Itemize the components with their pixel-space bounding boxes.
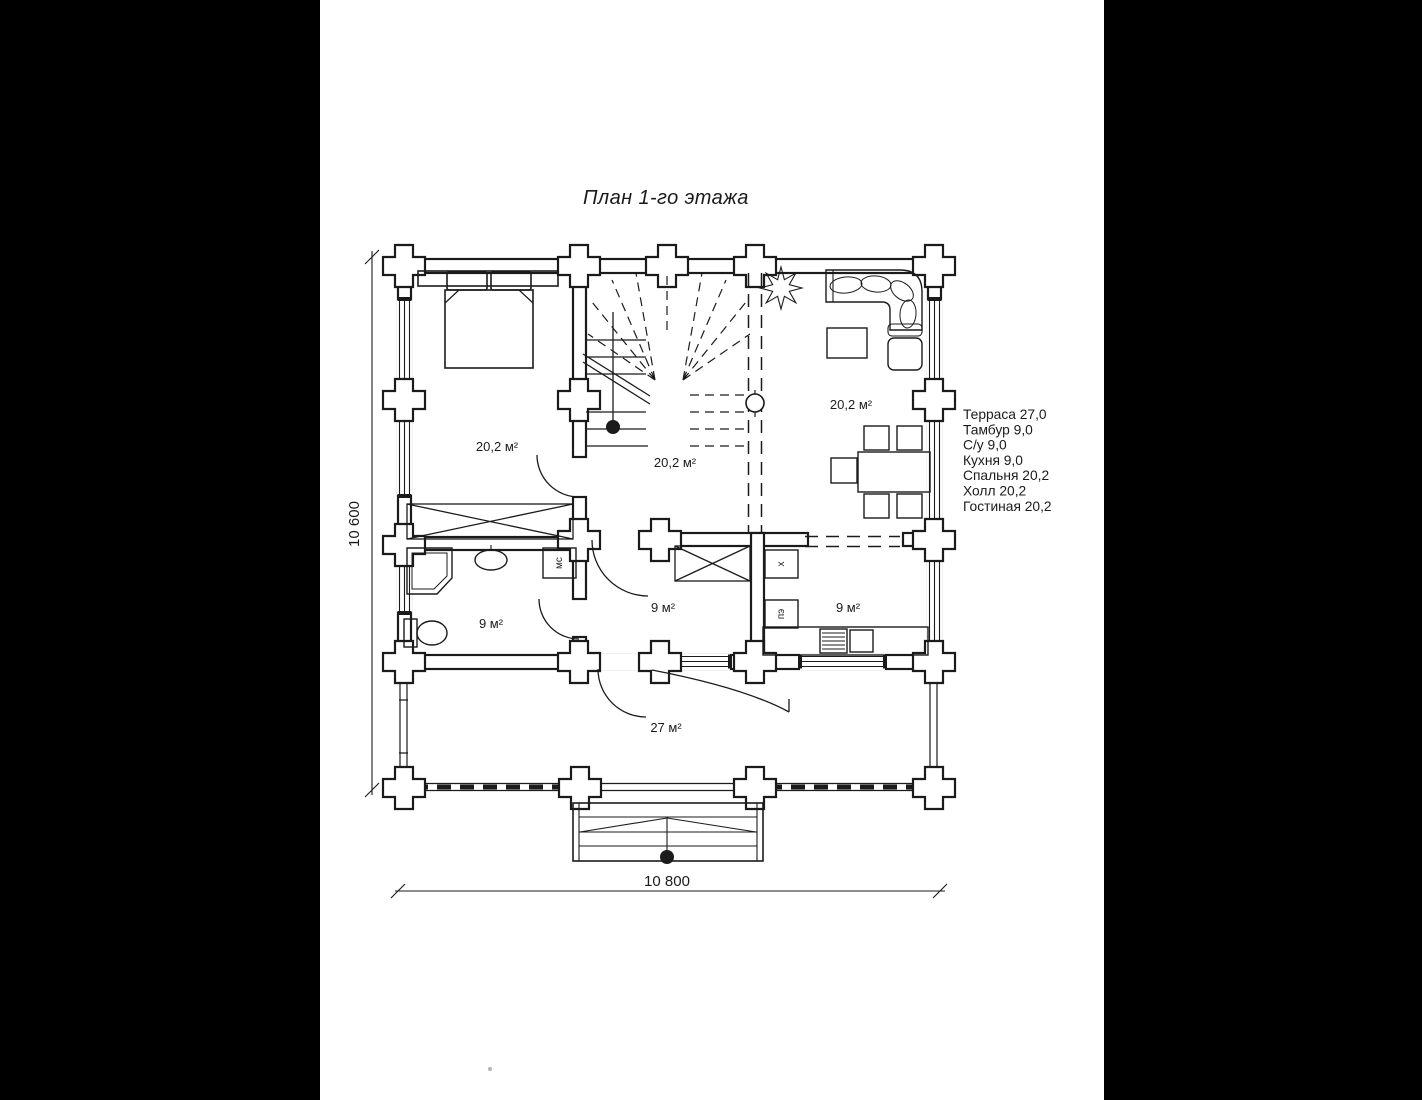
dimension-height-label: 10 600 [346,501,363,547]
floor-plan-image: План 1-го этажа [0,0,1422,1100]
label-text: 20,2 м² [830,397,873,412]
label-text: Тамбур 9,0 [963,422,1033,437]
label-text: Холл 20,2 [963,484,1026,499]
label-text: Терраса 27,0 [963,407,1047,422]
letterbox-right [1104,0,1422,1100]
dimension-width-label: 10 800 [644,873,690,890]
stray-speck [488,1067,492,1071]
letterbox-left [0,0,320,1100]
label-text: Гостиная 20,2 [963,499,1052,514]
label-text: пэ [776,609,787,620]
stair-start-dot [606,420,620,434]
label-text: х [776,562,787,567]
label-text: 9 м² [479,616,504,631]
label-text: 20,2 м² [654,455,697,470]
page-title: План 1-го этажа [583,187,749,209]
label-text: 20,2 м² [476,439,519,454]
label-text: Спальня 20,2 [963,468,1049,483]
label-text: Кухня 9,0 [963,453,1023,468]
label-text: С/у 9,0 [963,438,1007,453]
label-text: 9 м² [836,600,861,615]
label-text: 9 м² [651,600,676,615]
label-text: 27 м² [650,720,682,735]
label-text: мс [554,557,565,569]
image-viewer-canvas: План 1-го этажа [0,0,1422,1100]
porch-dot [660,850,674,864]
